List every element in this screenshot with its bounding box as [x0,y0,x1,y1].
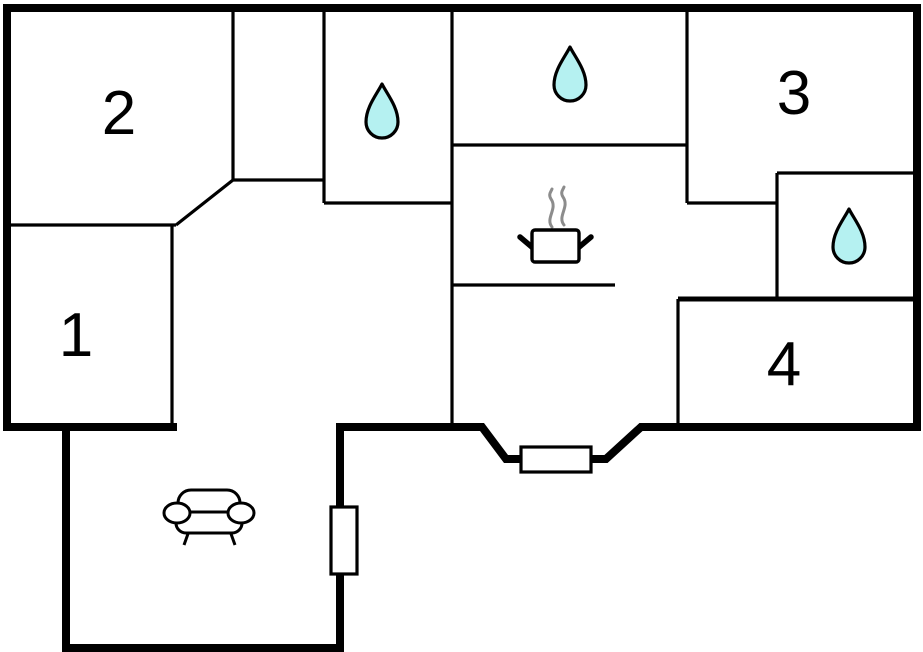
water-drop-icon [366,84,398,138]
room-2-label: 2 [102,83,136,145]
floor-plan: 1 2 3 4 [0,0,923,652]
room-1-label: 1 [59,305,93,367]
steam-icon [562,187,565,225]
sofa-icon [164,490,254,545]
water-drop-icon [554,47,586,101]
sofa-armrest-left [164,503,190,523]
cooking-pot-icon [520,187,591,262]
windows [331,447,591,574]
water-drop-icon [833,209,865,263]
room-4-label: 4 [767,334,801,396]
window-icon [521,447,591,472]
window-icon [331,507,357,574]
sofa-armrest-right [228,503,254,523]
pot-body [532,230,579,262]
room-3-label: 3 [777,63,811,125]
steam-icon [550,189,553,227]
